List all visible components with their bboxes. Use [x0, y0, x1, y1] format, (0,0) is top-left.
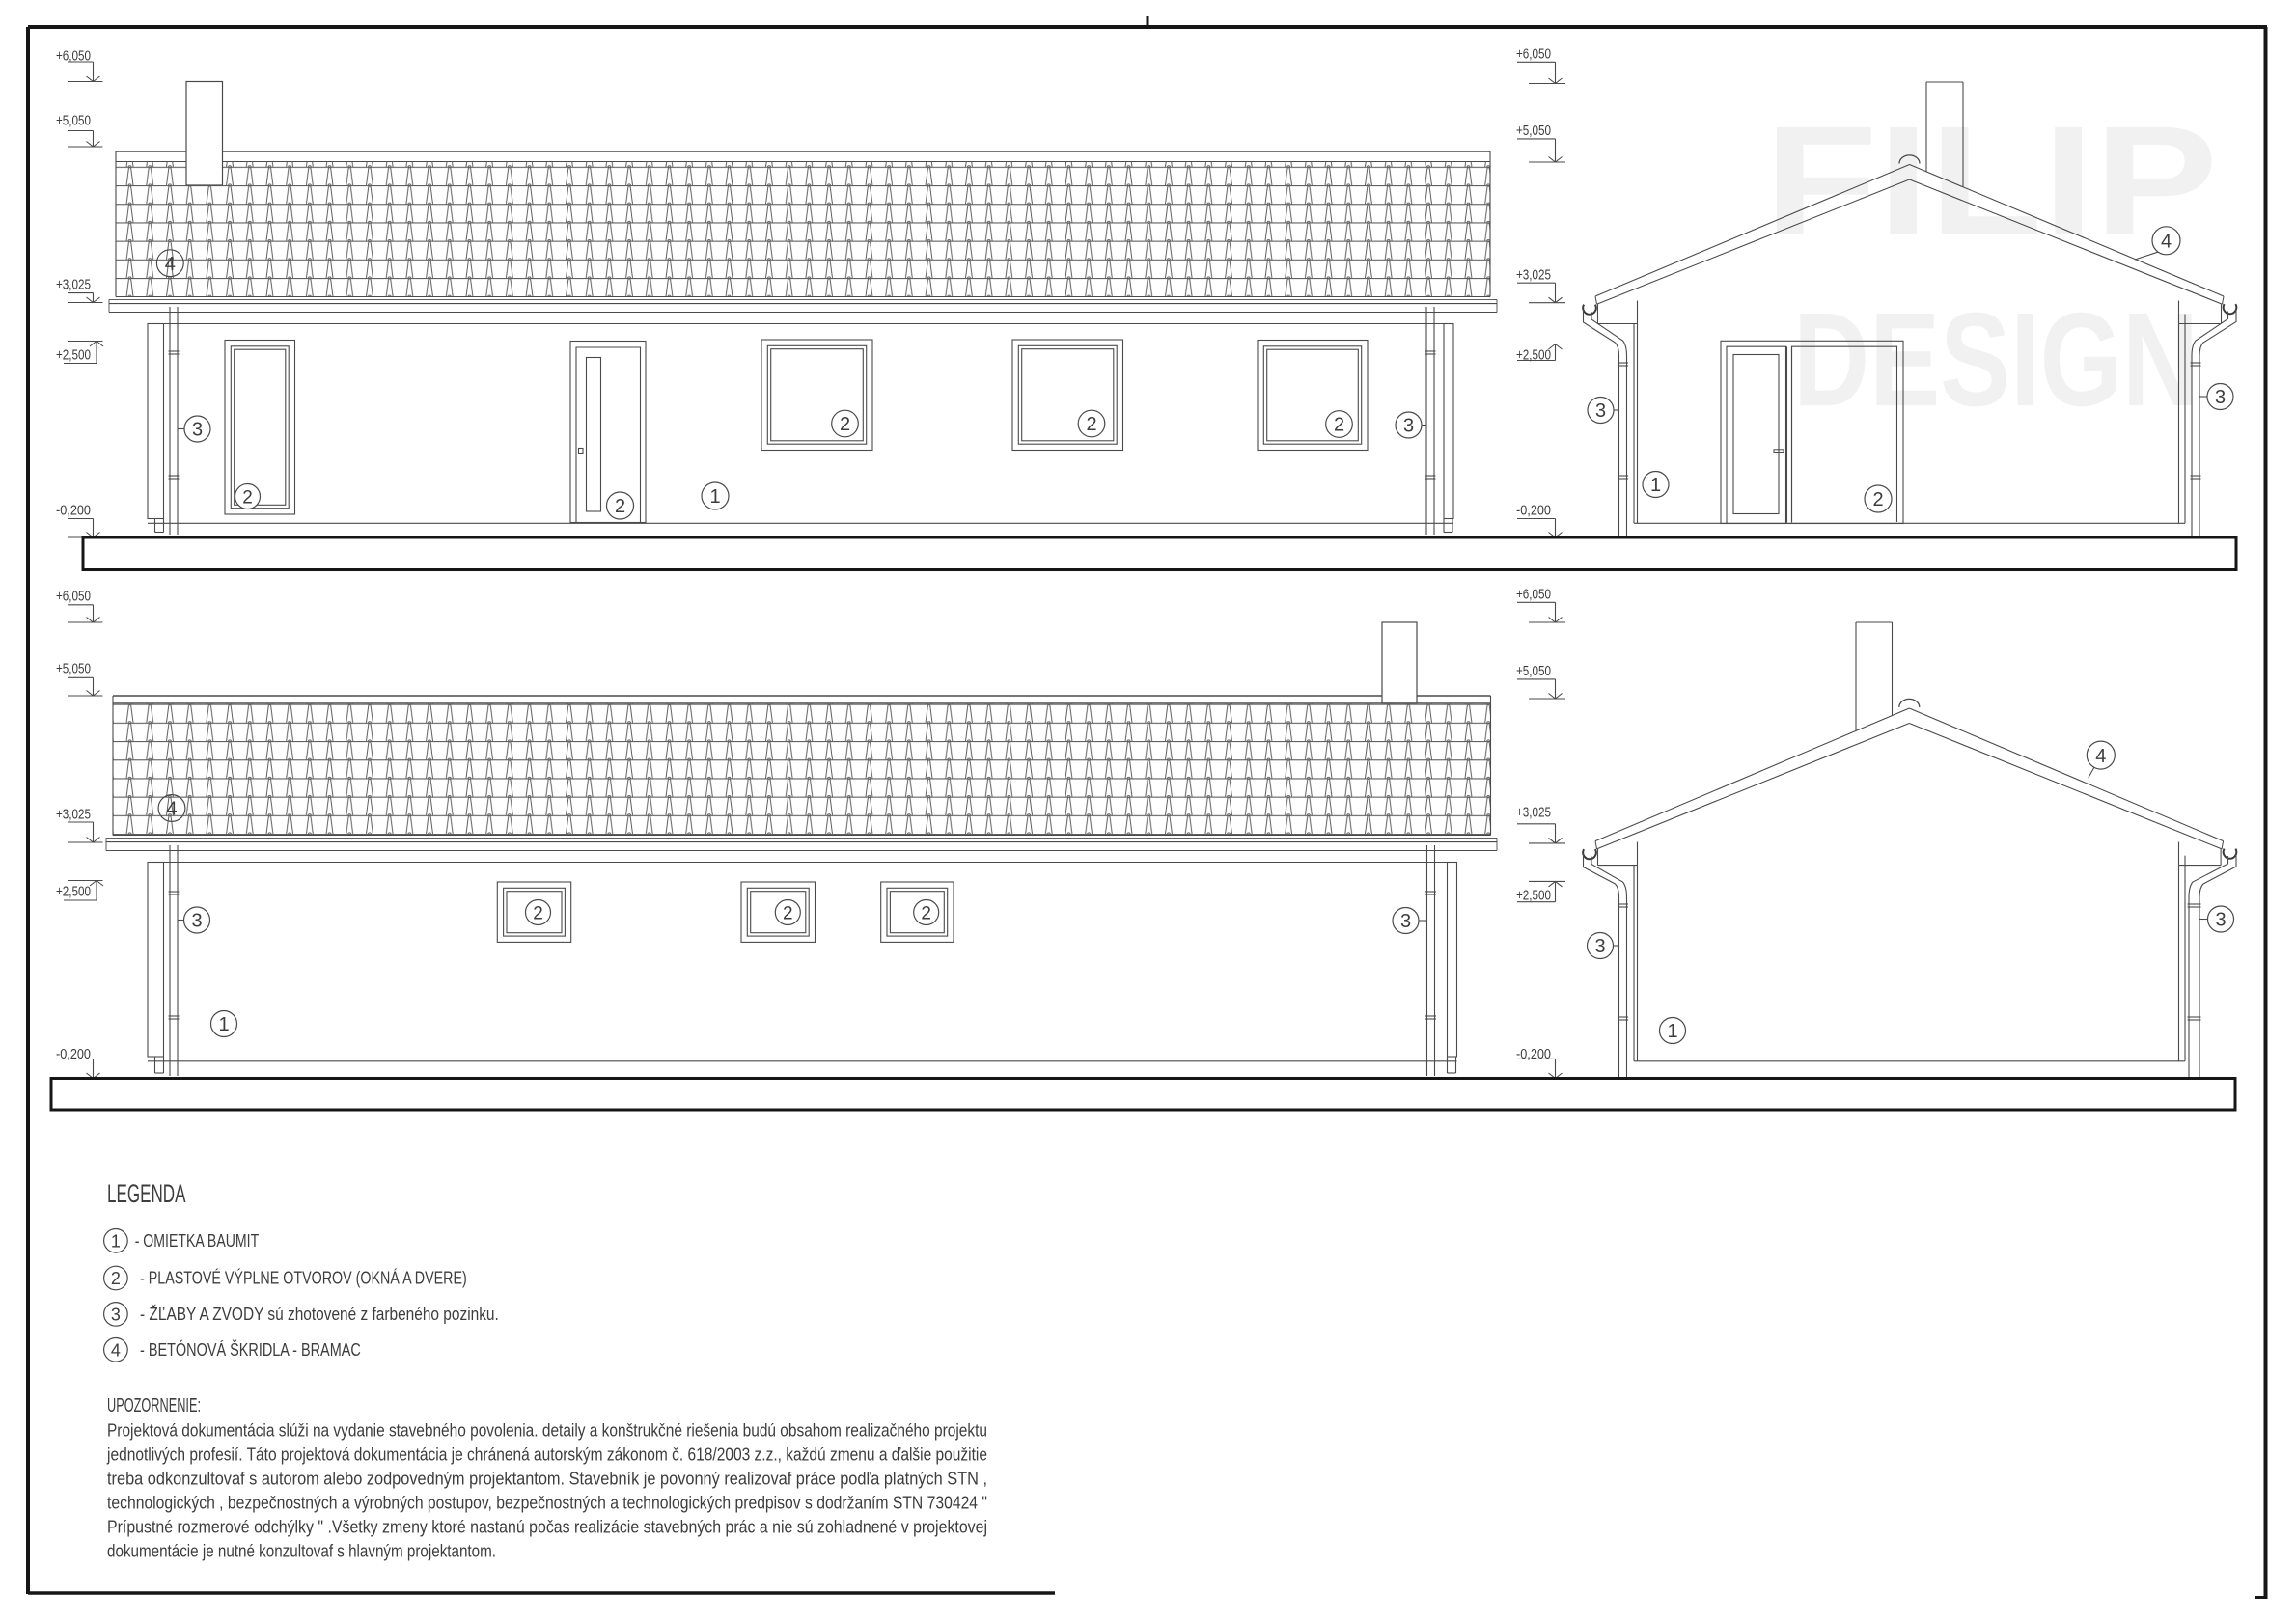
svg-text:4: 4 [2161, 232, 2172, 253]
svg-text:+6,050: +6,050 [56, 590, 91, 605]
svg-text:2: 2 [615, 496, 625, 517]
svg-text:1: 1 [1667, 1021, 1677, 1042]
svg-text:2: 2 [1334, 415, 1344, 436]
svg-text:1: 1 [218, 1014, 229, 1035]
svg-text:-0,200: -0,200 [56, 1047, 91, 1062]
svg-text:-0,200: -0,200 [1516, 504, 1551, 519]
svg-text:+5,050: +5,050 [1516, 664, 1551, 679]
svg-text:Projektová dokumentácia slúži: Projektová dokumentácia slúži na vydanie… [107, 1420, 987, 1441]
svg-text:jednotlivých profesií. Táto pr: jednotlivých profesií. Táto projektová d… [106, 1444, 987, 1465]
svg-text:4: 4 [165, 254, 176, 275]
svg-text:2: 2 [533, 903, 543, 923]
svg-text:+5,050: +5,050 [1516, 124, 1551, 139]
svg-text:2: 2 [783, 903, 793, 923]
svg-text:+3,025: +3,025 [1516, 806, 1551, 821]
svg-text:+6,050: +6,050 [1516, 47, 1551, 63]
svg-text:+2,500: +2,500 [56, 885, 91, 900]
svg-text:4: 4 [166, 799, 177, 820]
svg-text:DESIGN: DESIGN [1793, 286, 2199, 434]
svg-text:2: 2 [1086, 414, 1096, 435]
svg-text:3: 3 [192, 420, 203, 441]
svg-text:3: 3 [1403, 416, 1414, 437]
svg-text:3: 3 [1595, 400, 1606, 422]
svg-text:+2,500: +2,500 [56, 348, 91, 364]
svg-text:+3,025: +3,025 [56, 278, 91, 293]
svg-text:- OMIETKA BAUMIT: - OMIETKA BAUMIT [135, 1230, 260, 1251]
svg-text:- PLASTOVÉ VÝPLNE OTVOROV (OKN: - PLASTOVÉ VÝPLNE OTVOROV (OKNÁ A DVERE) [140, 1268, 467, 1288]
svg-text:-0,200: -0,200 [1516, 1047, 1551, 1062]
svg-text:4: 4 [111, 1340, 121, 1360]
svg-text:3: 3 [111, 1305, 121, 1324]
svg-text:FILIP: FILIP [1764, 94, 2218, 266]
svg-text:+5,050: +5,050 [56, 114, 91, 129]
svg-text:-0,200: -0,200 [56, 504, 91, 519]
svg-text:treba odkonzultovaf s autorom: treba odkonzultovaf s autorom alebo zodp… [107, 1469, 987, 1489]
svg-text:3: 3 [2215, 387, 2226, 408]
svg-text:1: 1 [1650, 475, 1661, 496]
svg-text:3: 3 [1594, 936, 1605, 957]
svg-text:2: 2 [242, 487, 253, 508]
svg-text:+5,050: +5,050 [56, 662, 91, 677]
svg-text:3: 3 [191, 911, 202, 932]
svg-text:1: 1 [709, 486, 720, 508]
svg-text:3: 3 [1400, 911, 1411, 932]
svg-text:technologických , bezpečnostný: technologických , bezpečnostných a výrob… [107, 1493, 987, 1513]
svg-text:2: 2 [111, 1269, 121, 1288]
svg-text:Prípustné rozmerové odchýlky ": Prípustné rozmerové odchýlky " .Všetky z… [107, 1517, 987, 1537]
svg-text:+3,025: +3,025 [1516, 268, 1551, 284]
svg-text:2: 2 [921, 903, 931, 923]
svg-text:1: 1 [111, 1231, 121, 1251]
svg-text:dokumentácie je nutné konzulto: dokumentácie je nutné konzultovaf s hlav… [107, 1541, 496, 1561]
svg-text:- ŽĽABY A ZVODY sú zhotovené z: - ŽĽABY A ZVODY sú zhotovené z farbeného… [140, 1304, 499, 1324]
svg-text:+2,500: +2,500 [1516, 888, 1551, 903]
svg-text:UPOZORNENIE:: UPOZORNENIE: [107, 1395, 201, 1417]
svg-text:+6,050: +6,050 [1516, 588, 1551, 603]
svg-text:+3,025: +3,025 [56, 808, 91, 823]
svg-text:3: 3 [2215, 910, 2226, 931]
svg-text:2: 2 [1872, 489, 1883, 510]
svg-text:- BETÓNOVÁ ŠKRIDLA - BRAMAC: - BETÓNOVÁ ŠKRIDLA - BRAMAC [140, 1339, 361, 1360]
svg-text:4: 4 [2095, 746, 2106, 767]
svg-text:LEGENDA: LEGENDA [107, 1179, 186, 1208]
svg-text:2: 2 [840, 414, 850, 435]
